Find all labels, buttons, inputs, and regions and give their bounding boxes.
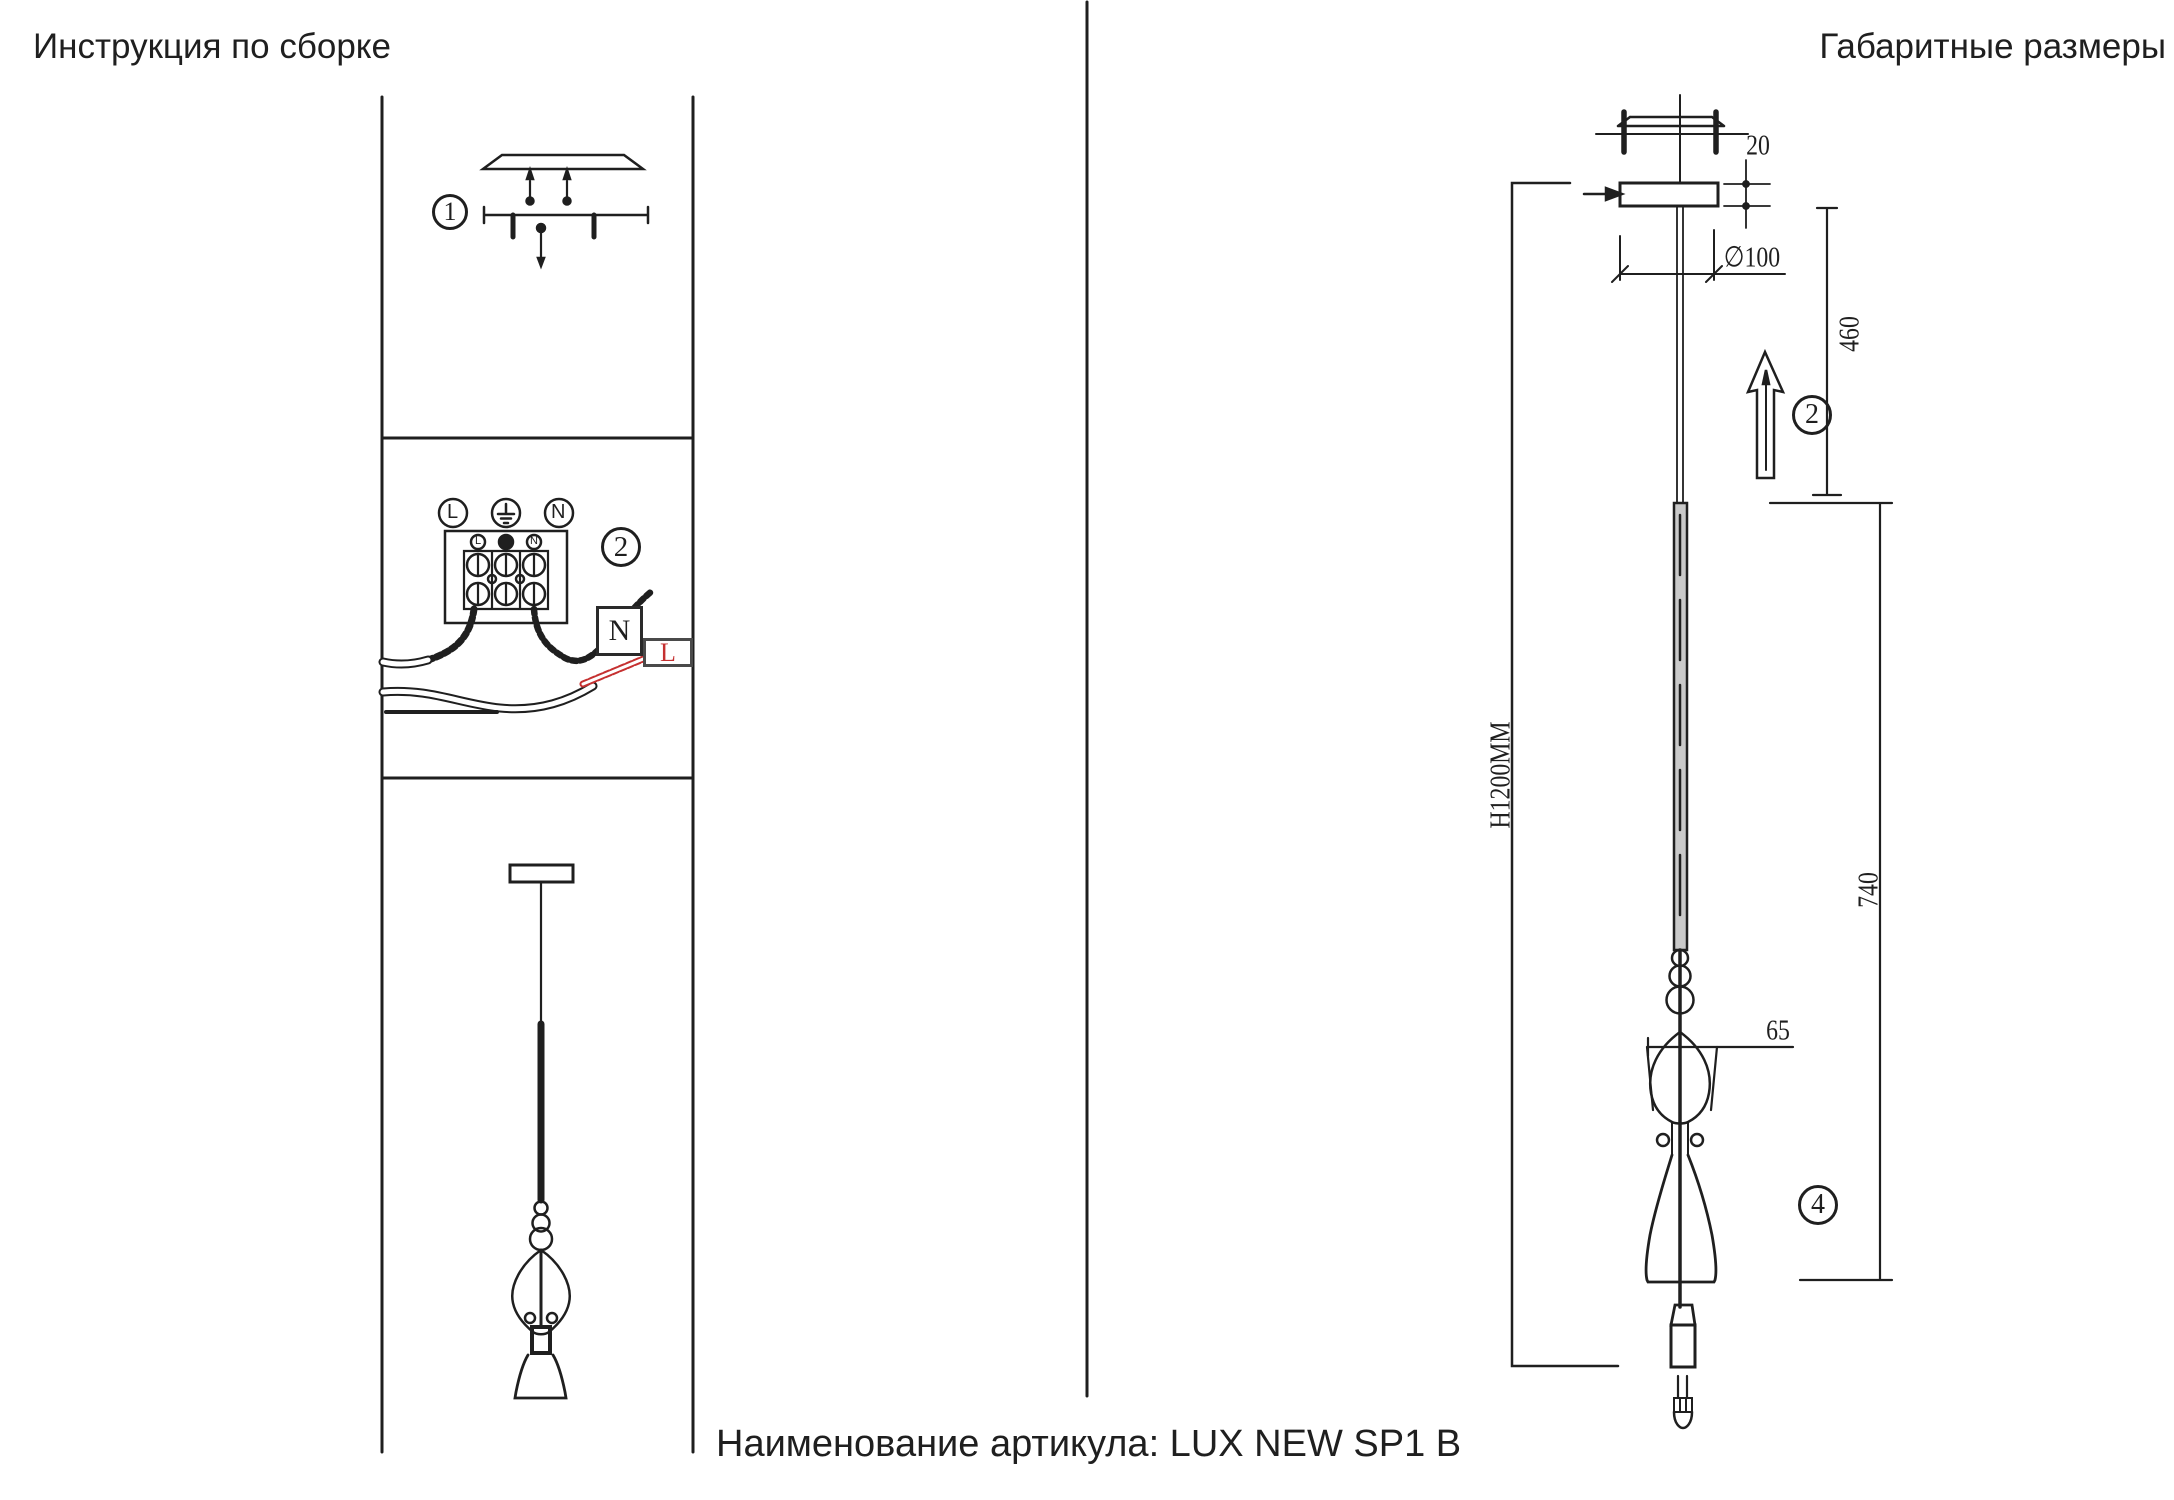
article-name-label: Наименование артикула: LUX NEW SP1 B (716, 1423, 1461, 1466)
step1-mounting-drawing (483, 155, 648, 266)
terminal-line-label: L (447, 501, 458, 524)
line-wire-letter: L (660, 638, 676, 668)
page-title-assembly: Инструкция по сборке (33, 27, 391, 67)
line-wire-pointer (583, 657, 648, 684)
dim-canopy-thickness: 20 (1746, 130, 1770, 163)
page-title-dimensions: Габаритные размеры (1819, 27, 2166, 67)
hang-step-callout: 2 (1792, 395, 1832, 435)
shade-step-callout: 4 (1798, 1185, 1838, 1225)
shade-step-number: 4 (1811, 1189, 1825, 1221)
step3-pendant-drawing (510, 865, 573, 1398)
diagram-linework (0, 0, 2174, 1500)
dim-suspension-height: 460 (1834, 316, 1867, 352)
hang-direction-arrow (1748, 352, 1783, 478)
dim-fixture-height: 740 (1853, 872, 1886, 908)
earth-icon (498, 504, 514, 523)
dim-shade-width: 65 (1766, 1015, 1790, 1048)
neutral-wire-box: N (596, 606, 643, 656)
overall-height-dim-line (1512, 183, 1618, 1366)
step2-callout: 2 (601, 527, 641, 567)
line-wire-box: L (643, 638, 693, 667)
dim-canopy-diameter: ∅100 (1724, 240, 1780, 275)
block-mini-neutral-label: N (530, 535, 538, 547)
terminal-neutral-label: N (551, 501, 565, 524)
step2-number: 2 (614, 531, 629, 564)
dimension-drawing (1512, 95, 1892, 1428)
canopy-thickness-dim (1724, 160, 1770, 228)
neutral-wire-letter: N (609, 614, 631, 648)
mains-cable (383, 686, 593, 712)
step1-callout: 1 (432, 194, 468, 230)
instruction-sheet: Инструкция по сборке Габаритные размеры … (0, 0, 2174, 1500)
hang-step-number: 2 (1805, 399, 1819, 431)
earth-wire (383, 609, 474, 664)
block-mini-line-label: L (475, 535, 481, 547)
dim-overall-height: H1200MM (1485, 721, 1518, 828)
step1-number: 1 (444, 197, 457, 227)
bulb-drawing (1674, 1376, 1692, 1428)
